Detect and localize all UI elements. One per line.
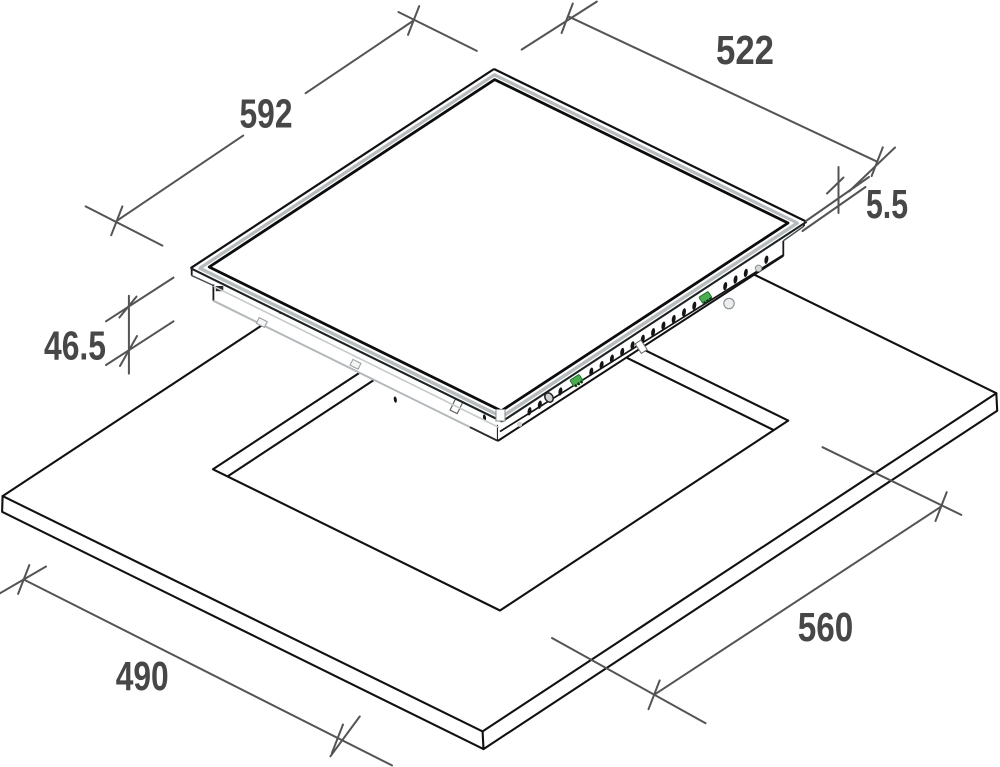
svg-text:5.5: 5.5 — [866, 181, 908, 227]
svg-text:522: 522 — [716, 27, 774, 73]
svg-text:592: 592 — [240, 91, 293, 137]
svg-text:560: 560 — [798, 604, 854, 650]
svg-text:490: 490 — [116, 653, 169, 699]
svg-text:46.5: 46.5 — [44, 323, 106, 369]
